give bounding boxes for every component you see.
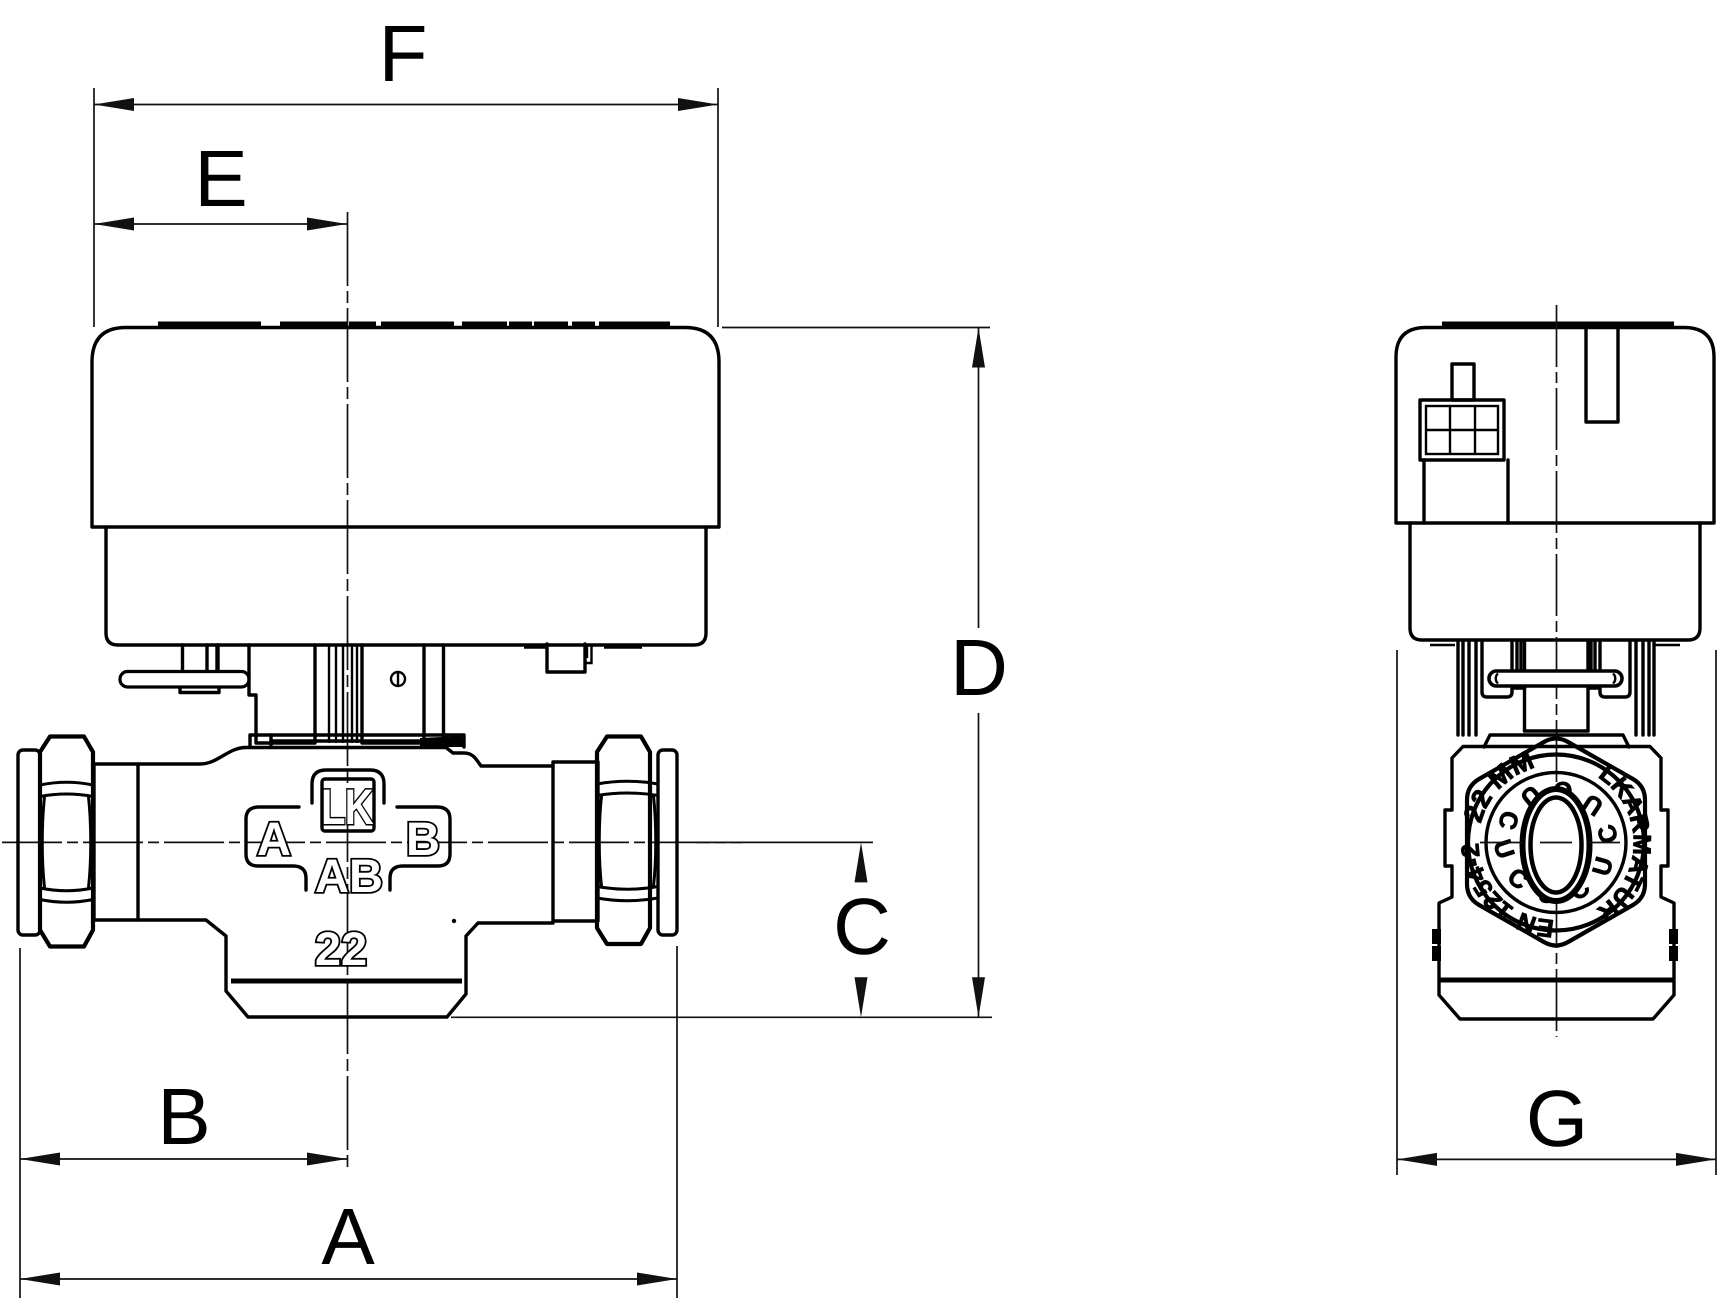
svg-text:G: G	[1526, 1074, 1588, 1163]
svg-text:A: A	[257, 812, 291, 865]
svg-text:B: B	[406, 812, 440, 865]
svg-text:22: 22	[315, 922, 367, 975]
svg-text:A: A	[321, 1192, 375, 1281]
svg-text:C: C	[833, 882, 891, 971]
svg-text:F: F	[379, 9, 428, 98]
svg-text:B: B	[157, 1072, 210, 1161]
svg-text:LK: LK	[321, 779, 373, 835]
svg-text:AB: AB	[315, 849, 383, 902]
svg-text:E: E	[194, 134, 247, 223]
svg-text:D: D	[950, 623, 1008, 712]
